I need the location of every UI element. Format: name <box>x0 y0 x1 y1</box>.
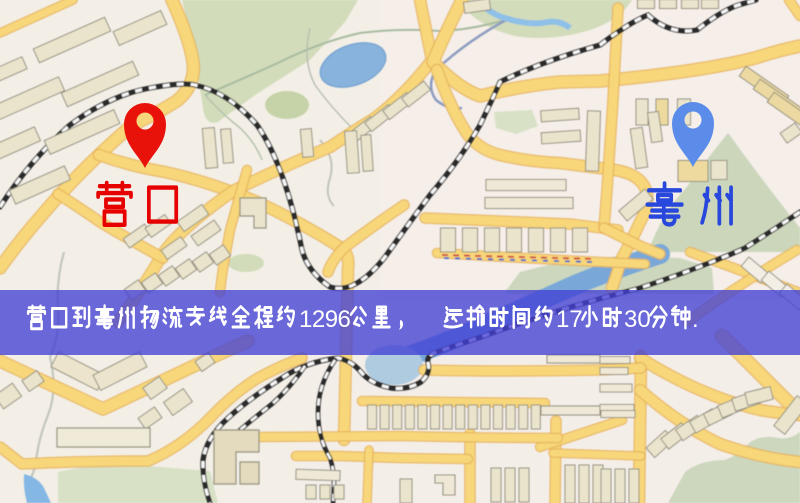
svg-text:17: 17 <box>556 306 583 333</box>
svg-text:1296: 1296 <box>299 306 351 333</box>
svg-text:.: . <box>692 306 699 333</box>
svg-text:30: 30 <box>624 306 651 333</box>
